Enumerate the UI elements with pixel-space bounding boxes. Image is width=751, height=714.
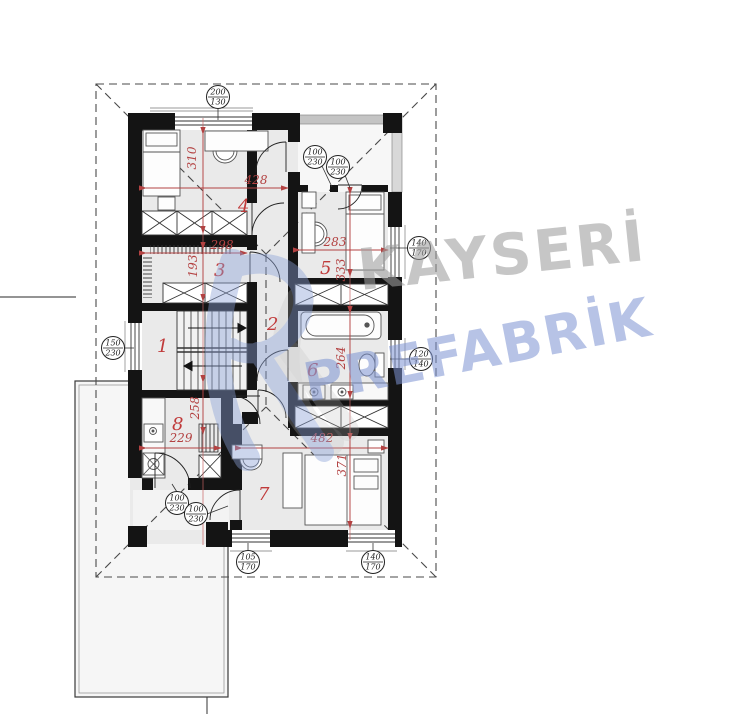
stove bbox=[143, 453, 164, 475]
dim-428: 428 bbox=[244, 173, 268, 187]
kitchen-counter bbox=[142, 398, 165, 478]
dim-283: 283 bbox=[323, 235, 347, 249]
tag-bottom: 130 bbox=[210, 98, 225, 107]
tag-top: 200 bbox=[209, 88, 225, 97]
wardrobe-room4 bbox=[142, 211, 247, 235]
tag-top: 100 bbox=[169, 494, 184, 503]
rug-room7 bbox=[283, 453, 302, 508]
tag-150x230: 150 230 bbox=[102, 337, 125, 360]
tag-100x230-b: 100 230 bbox=[327, 156, 350, 179]
dim-258: 258 bbox=[188, 396, 202, 420]
tag-top: 105 bbox=[240, 553, 255, 562]
tag-top: 100 bbox=[330, 158, 345, 167]
tag-bottom: 230 bbox=[306, 158, 322, 167]
bathtub bbox=[301, 312, 381, 339]
room-8-label: 8 bbox=[172, 414, 183, 435]
room-7-label: 7 bbox=[258, 484, 270, 505]
tag-100x230-d: 100 230 bbox=[185, 503, 208, 526]
tag-top: 150 bbox=[105, 339, 120, 348]
tag-105x170: 105 170 bbox=[237, 551, 260, 574]
tag-140x170-bottom: 140 170 bbox=[362, 551, 385, 574]
dim-371: 371 bbox=[335, 454, 349, 477]
window-bottom-140x170 bbox=[346, 530, 397, 551]
tag-bottom: 230 bbox=[187, 515, 203, 524]
dim-333: 333 bbox=[334, 258, 348, 281]
tag-top: 100 bbox=[188, 505, 203, 514]
tag-bottom: 230 bbox=[329, 168, 345, 177]
window-bottom-105x170 bbox=[230, 530, 272, 551]
dim-310: 310 bbox=[185, 146, 199, 169]
room-4-label: 4 bbox=[237, 196, 249, 217]
tag-200x130: 200 130 bbox=[207, 86, 230, 109]
room-1-label: 1 bbox=[157, 336, 168, 357]
tag-top: 140 bbox=[365, 553, 380, 562]
tag-bottom: 170 bbox=[240, 563, 255, 572]
tag-top: 100 bbox=[307, 148, 322, 157]
room-5-label: 5 bbox=[320, 258, 331, 279]
tag-bottom: 230 bbox=[168, 504, 184, 513]
closet-kitchen bbox=[199, 455, 221, 478]
tag-bottom: 230 bbox=[104, 349, 120, 358]
floor-plan-page: 428 310 298 193 283 333 264 258 229 482 … bbox=[0, 0, 751, 714]
dim-193: 193 bbox=[186, 254, 200, 277]
coat-rack-side bbox=[143, 256, 152, 298]
tag-100x230-a: 100 230 bbox=[304, 146, 327, 169]
tag-bottom: 170 bbox=[365, 563, 380, 572]
window-left-150x230 bbox=[125, 321, 142, 372]
floor-plan-drawing: 428 310 298 193 283 333 264 258 229 482 … bbox=[0, 0, 751, 714]
